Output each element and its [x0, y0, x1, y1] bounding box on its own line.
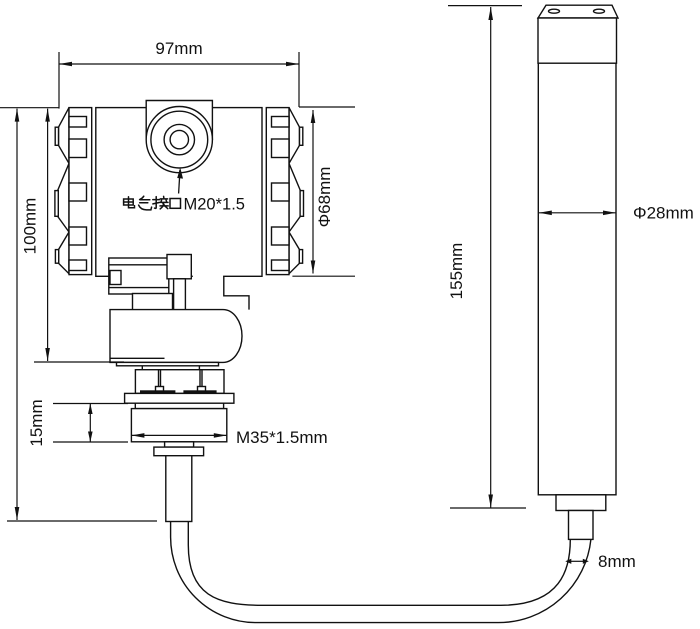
- svg-text:97mm: 97mm: [155, 39, 202, 58]
- svg-text:155mm: 155mm: [447, 243, 466, 300]
- svg-text:Φ68mm: Φ68mm: [315, 167, 334, 228]
- svg-text:M20*1.5: M20*1.5: [184, 195, 245, 213]
- svg-text:15mm: 15mm: [27, 399, 46, 446]
- svg-text:Φ28mm: Φ28mm: [633, 204, 694, 223]
- svg-text:M35*1.5mm: M35*1.5mm: [236, 428, 328, 447]
- svg-text:100mm: 100mm: [21, 198, 40, 255]
- svg-text:8mm: 8mm: [598, 552, 636, 571]
